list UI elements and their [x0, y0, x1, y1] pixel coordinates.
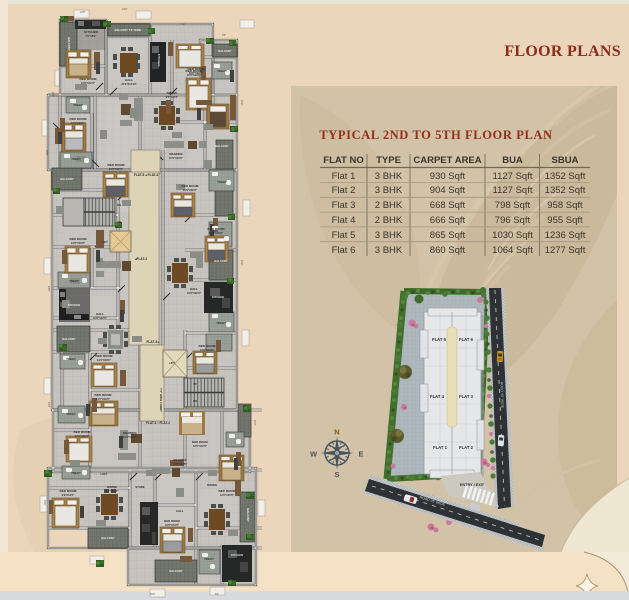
svg-text:BED ROOM: BED ROOM	[198, 344, 215, 348]
svg-text:BALCONY 7'6" WIDE: BALCONY 7'6" WIDE	[115, 28, 142, 32]
svg-text:UP: UP	[193, 382, 197, 386]
svg-text:HALL: HALL	[96, 312, 104, 316]
svg-text:BED ROOM: BED ROOM	[59, 489, 76, 493]
svg-text:BED ROOM: BED ROOM	[69, 117, 86, 121]
svg-text:10'6"X22'0": 10'6"X22'0"	[187, 291, 202, 295]
svg-text:BALCONY: BALCONY	[101, 536, 114, 540]
svg-text:BED ROOM: BED ROOM	[192, 440, 208, 444]
svg-text:11'8"X10'6": 11'8"X10'6"	[209, 231, 224, 235]
svg-text:DINING: DINING	[167, 91, 178, 95]
svg-text:LIFT: LIFT	[102, 240, 108, 244]
svg-text:DN: DN	[117, 203, 121, 207]
svg-text:10'0"X12'0": 10'0"X12'0"	[183, 188, 198, 192]
svg-text:8'7"X12'5": 8'7"X12'5"	[106, 489, 119, 493]
svg-text:10'6": 10'6"	[47, 286, 50, 291]
svg-text:UP: UP	[117, 220, 121, 224]
svg-text:11'0": 11'0"	[51, 92, 54, 97]
svg-text:12'0"X13'0": 12'0"X13'0"	[165, 523, 180, 527]
svg-text:11'0"X10'0": 11'0"X10'0"	[97, 358, 112, 362]
svg-text:9'5"X12'5": 9'5"X12'5"	[166, 95, 179, 99]
svg-text:LOFT: LOFT	[100, 472, 107, 476]
svg-text:KITCHEN: KITCHEN	[212, 295, 224, 299]
svg-text:DRAWING: DRAWING	[173, 458, 187, 462]
svg-text:BED ROOM: BED ROOM	[218, 489, 235, 493]
svg-text:HALL: HALL	[176, 509, 184, 513]
svg-text:6'0": 6'0"	[215, 593, 219, 596]
svg-text:10'9": 10'9"	[150, 593, 155, 596]
svg-text:12'0": 12'0"	[253, 420, 256, 425]
svg-text:10'6"X22'0": 10'6"X22'0"	[93, 316, 108, 320]
svg-text:12'8"X10'8": 12'8"X10'8"	[71, 241, 86, 245]
svg-text:DN: DN	[193, 399, 197, 403]
svg-text:TOILET: TOILET	[66, 357, 76, 361]
svg-text:9'6": 9'6"	[222, 34, 226, 37]
svg-text:BALCONY: BALCONY	[67, 37, 71, 50]
svg-text:TOILET: TOILET	[216, 321, 226, 325]
svg-text:BALCONY: BALCONY	[215, 144, 228, 148]
svg-text:DRAWING: DRAWING	[169, 152, 183, 156]
svg-text:11'9"X13'0": 11'9"X13'0"	[123, 435, 138, 439]
svg-text:BALCONY: BALCONY	[60, 177, 73, 181]
svg-text:TOILET: TOILET	[217, 69, 227, 73]
svg-text:15'9"X16'0": 15'9"X16'0"	[169, 156, 184, 160]
svg-text:FLAT-1 ▪ FLAT-2: FLAT-1 ▪ FLAT-2	[146, 421, 170, 425]
svg-text:7'2" WIDE LOBBY: 7'2" WIDE LOBBY	[159, 388, 163, 412]
svg-text:TOILET: TOILET	[217, 180, 227, 184]
svg-text:DINING: DINING	[207, 483, 217, 487]
svg-text:KITCHEN: KITCHEN	[231, 553, 243, 557]
svg-text:BED ROOM: BED ROOM	[94, 393, 111, 397]
svg-text:14'0": 14'0"	[47, 402, 50, 407]
svg-text:BALCONY: BALCONY	[214, 259, 227, 263]
svg-text:12'6": 12'6"	[43, 500, 46, 505]
svg-text:9'9"X12'6": 9'9"X12'6"	[62, 493, 75, 497]
svg-text:BED ROOM: BED ROOM	[79, 77, 96, 81]
svg-text:KITCHEN: KITCHEN	[157, 54, 161, 66]
svg-text:12'8": 12'8"	[45, 150, 48, 155]
svg-text:10'0"X12'4": 10'0"X12'4"	[189, 71, 204, 75]
svg-text:BED ROOM: BED ROOM	[73, 430, 90, 434]
svg-text:12'4": 12'4"	[180, 23, 185, 26]
svg-text:12'6"X10'9": 12'6"X10'9"	[200, 348, 215, 352]
svg-text:12'0"X10'0": 12'0"X10'0"	[220, 493, 235, 497]
svg-text:FLAT-3 ▸: FLAT-3 ▸	[146, 340, 159, 344]
svg-text:TOILET: TOILET	[66, 412, 76, 416]
svg-text:BALCONY: BALCONY	[246, 508, 250, 521]
svg-text:LIFT: LIFT	[169, 361, 175, 365]
svg-text:7'0"X8'0": 7'0"X8'0"	[85, 34, 97, 38]
svg-text:TOILET: TOILET	[204, 557, 214, 561]
svg-text:18'9"X13'5": 18'9"X13'5"	[173, 462, 188, 466]
svg-text:12'6"X12'0": 12'6"X12'0"	[193, 444, 208, 448]
svg-text:HALL: HALL	[190, 287, 198, 291]
svg-text:BED ROOM: BED ROOM	[187, 67, 204, 71]
svg-text:DRAWING: DRAWING	[123, 431, 137, 435]
svg-text:12'0"X10'0": 12'0"X10'0"	[75, 434, 90, 438]
svg-text:BED ROOM: BED ROOM	[164, 519, 180, 523]
svg-text:FLAT-5 ◂ FLAT-4: FLAT-5 ◂ FLAT-4	[134, 173, 159, 177]
svg-text:BED ROOM: BED ROOM	[181, 184, 198, 188]
svg-text:KITCHEN: KITCHEN	[68, 303, 80, 307]
svg-text:BALCONY: BALCONY	[62, 337, 75, 341]
svg-text:10'6"X12'0": 10'6"X12'0"	[81, 81, 96, 85]
svg-text:BED ROOM: BED ROOM	[107, 163, 124, 167]
svg-text:TOILET: TOILET	[71, 471, 81, 475]
svg-text:10'0": 10'0"	[122, 8, 127, 11]
svg-text:TOILET: TOILET	[69, 279, 79, 283]
svg-text:◂FLAT-4: ◂FLAT-4	[134, 257, 147, 261]
svg-text:TOILET: TOILET	[73, 103, 83, 107]
svg-text:STORE: STORE	[135, 485, 145, 489]
svg-text:BALCONY: BALCONY	[218, 49, 231, 53]
svg-text:10'0"X12'0": 10'0"X12'0"	[109, 167, 124, 171]
svg-text:BED ROOM: BED ROOM	[95, 354, 112, 358]
svg-text:BED ROOM: BED ROOM	[69, 237, 86, 241]
svg-text:12'6": 12'6"	[80, 11, 85, 14]
svg-text:14'0"X10'0": 14'0"X10'0"	[96, 397, 111, 401]
svg-text:DINING: DINING	[107, 485, 117, 489]
svg-text:11'0"X10'6": 11'0"X10'6"	[71, 121, 86, 125]
svg-text:HALL: HALL	[125, 78, 133, 82]
svg-text:TOILET: TOILET	[71, 157, 81, 161]
svg-text:10'6": 10'6"	[240, 260, 243, 265]
svg-text:10'0"X16'10": 10'0"X16'10"	[121, 82, 137, 86]
svg-text:BALCONY: BALCONY	[169, 569, 182, 573]
svg-text:12'6": 12'6"	[240, 100, 243, 105]
svg-text:KITCHEN: KITCHEN	[84, 30, 99, 34]
svg-text:BED ROOM: BED ROOM	[207, 227, 224, 231]
